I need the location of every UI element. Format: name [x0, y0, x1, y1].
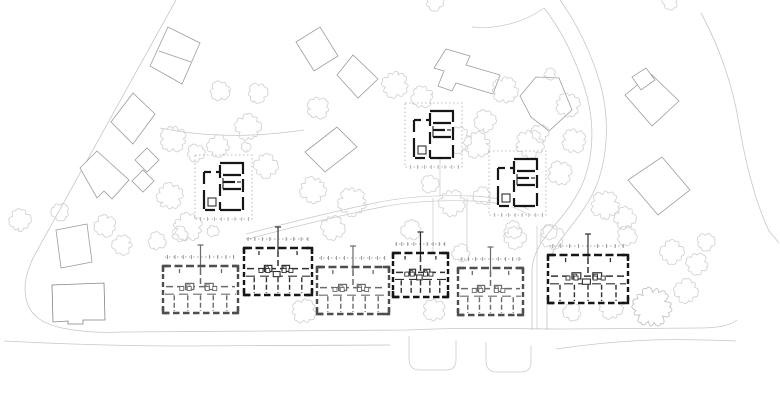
fixture-square — [180, 287, 184, 291]
context-building — [150, 27, 200, 84]
tree — [241, 142, 251, 152]
fixture-square — [601, 276, 605, 280]
site-plan — [0, 0, 780, 401]
road-line — [701, 13, 779, 243]
context-building — [337, 55, 378, 98]
tree — [563, 303, 581, 321]
tree — [697, 234, 715, 251]
tree — [411, 86, 433, 108]
tree — [9, 209, 32, 232]
tree — [614, 206, 637, 229]
context-building — [520, 77, 572, 131]
fixture-square — [357, 288, 361, 292]
tree — [207, 134, 230, 157]
site-plan-canvas — [0, 0, 780, 401]
context-building — [111, 93, 155, 144]
row-house-plans — [162, 227, 629, 316]
fixture-square — [333, 288, 337, 292]
tree — [173, 212, 202, 241]
fixture-square — [423, 272, 427, 276]
room-box — [582, 279, 590, 284]
tree — [292, 299, 316, 323]
tree — [562, 129, 586, 153]
stair-box — [502, 194, 510, 202]
tree — [207, 225, 219, 237]
stair-box — [418, 146, 426, 154]
context-building — [56, 224, 92, 268]
tree — [548, 161, 572, 185]
fixture-square — [205, 287, 209, 291]
tree — [591, 191, 619, 220]
tree — [51, 203, 68, 220]
fixture-square — [479, 289, 483, 293]
tree — [504, 227, 527, 250]
tree — [674, 279, 699, 304]
fixture-square — [289, 269, 293, 273]
tree — [94, 215, 116, 238]
fixture-square — [429, 272, 433, 276]
road-line — [4, 341, 390, 346]
context-building — [132, 170, 154, 192]
fixture-square — [494, 289, 498, 293]
tree — [421, 175, 439, 193]
context-building — [296, 27, 338, 71]
tree — [618, 226, 638, 246]
fixture-square — [340, 288, 344, 292]
road-line — [472, 8, 544, 28]
context-building — [52, 283, 105, 324]
fixture-square — [574, 276, 578, 280]
tree — [253, 153, 278, 178]
tree — [423, 299, 444, 321]
room-box — [273, 272, 280, 277]
fixture-square — [410, 272, 414, 276]
fixture-square — [259, 269, 263, 273]
tree — [112, 235, 132, 255]
tree — [148, 232, 166, 250]
tree — [187, 144, 205, 162]
fixture-square — [213, 287, 217, 291]
room-box — [417, 275, 423, 280]
context-building — [305, 127, 357, 172]
tree — [320, 216, 345, 241]
context-building — [135, 148, 159, 172]
road-line — [409, 336, 456, 370]
fixture-square — [187, 287, 191, 291]
tree — [248, 83, 268, 103]
fixture-square — [472, 289, 476, 293]
tree — [662, 0, 677, 10]
fixture-square — [266, 269, 270, 273]
fixture-square — [593, 276, 597, 280]
tree — [338, 188, 367, 217]
road-line — [486, 342, 531, 372]
tree — [299, 176, 326, 203]
fixture-square — [365, 288, 369, 292]
fixture-square — [501, 289, 505, 293]
tree — [516, 130, 545, 159]
road-line — [556, 340, 736, 349]
fixture-square — [405, 272, 409, 276]
tree — [307, 97, 329, 119]
road-line — [160, 128, 304, 135]
tree — [381, 71, 408, 98]
tree — [659, 239, 684, 264]
tree — [504, 221, 522, 239]
context-building — [434, 49, 500, 94]
tree — [401, 220, 421, 240]
context-building — [80, 151, 129, 199]
road-line — [248, 201, 527, 239]
tree — [438, 190, 465, 217]
tree — [632, 287, 672, 326]
tree — [427, 0, 444, 11]
stair-box — [208, 198, 216, 206]
tree — [474, 110, 497, 133]
tree — [210, 81, 230, 101]
tree — [686, 253, 709, 275]
fixture-square — [282, 269, 286, 273]
tree — [156, 182, 183, 209]
context-building — [628, 157, 690, 215]
tree — [235, 113, 262, 140]
fixture-square — [566, 276, 570, 280]
small-house-plans — [195, 103, 546, 221]
